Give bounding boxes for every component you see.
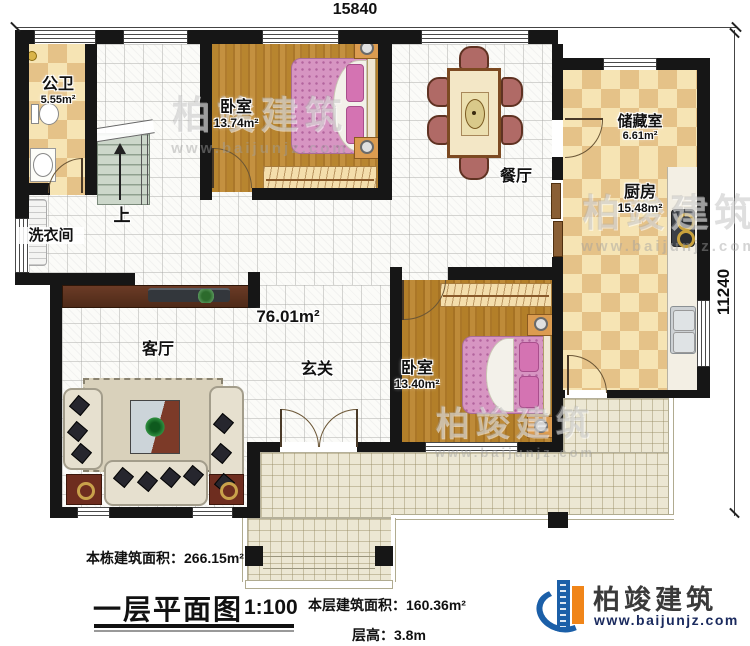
wall bbox=[247, 442, 280, 452]
room-label-living: 客厅 bbox=[132, 341, 184, 359]
window bbox=[123, 30, 188, 44]
terrace-column bbox=[548, 512, 568, 528]
tv-icon bbox=[148, 288, 230, 302]
porch-column bbox=[245, 546, 263, 566]
bedroom2-door-leaf bbox=[402, 280, 404, 320]
lamp-icon bbox=[534, 419, 548, 433]
bathroom-door-leaf bbox=[81, 158, 83, 193]
room-label-bedroom1: 卧室 13.74m² bbox=[196, 99, 276, 131]
room-label-bedroom2: 卧室 13.40m² bbox=[384, 360, 450, 392]
window bbox=[425, 442, 518, 452]
wall bbox=[248, 272, 260, 308]
window bbox=[603, 58, 657, 70]
room-name: 公卫 bbox=[26, 76, 90, 94]
chair-icon bbox=[427, 115, 449, 145]
porch-step-line bbox=[263, 568, 375, 569]
wall bbox=[552, 257, 563, 452]
room-label-laundry: 洗衣间 bbox=[18, 227, 84, 244]
wardrobe-icon bbox=[440, 283, 552, 307]
lamp-icon bbox=[220, 482, 238, 500]
room-area: 13.40m² bbox=[384, 378, 450, 392]
bed-headboard bbox=[543, 334, 551, 416]
wall bbox=[607, 390, 710, 398]
pillow-icon bbox=[519, 342, 539, 372]
wall bbox=[697, 367, 710, 398]
floor-plan: 15840 11240 柏竣建筑 www.baijunjz.com 柏竣建筑 w… bbox=[0, 0, 750, 646]
burner-icon bbox=[677, 213, 695, 231]
terrace-curb bbox=[391, 514, 674, 520]
pillow-icon bbox=[346, 64, 364, 102]
stairs-up-label: 上 bbox=[110, 206, 134, 226]
lamp-icon bbox=[77, 482, 95, 500]
window bbox=[421, 30, 529, 44]
chair-icon bbox=[501, 115, 523, 145]
sliding-door-panel bbox=[551, 183, 561, 219]
wardrobe-rail bbox=[443, 295, 549, 297]
plant-icon bbox=[144, 416, 166, 438]
plant-icon bbox=[198, 289, 214, 303]
wall bbox=[390, 267, 402, 442]
room-label-bathroom: 公卫 5.55m² bbox=[26, 76, 90, 107]
window bbox=[192, 507, 233, 518]
wardrobe-rail bbox=[266, 179, 374, 181]
open-area-label: 76.01m² bbox=[248, 307, 328, 327]
lamp-icon bbox=[534, 317, 548, 331]
porch-step-line bbox=[263, 556, 375, 557]
bedroom1-door-leaf bbox=[212, 148, 214, 188]
wall bbox=[247, 442, 260, 518]
window bbox=[697, 300, 710, 367]
terrace-floor bbox=[260, 452, 670, 518]
company-logo: 柏竣建筑 www.baijunjz.com bbox=[533, 574, 743, 636]
room-name: 厨房 bbox=[602, 184, 678, 202]
wall bbox=[552, 44, 563, 120]
stairs-handrail bbox=[141, 133, 148, 205]
total-area-text: 本栋建筑面积：266.15m² bbox=[86, 548, 244, 568]
wall bbox=[448, 267, 563, 280]
room-area: 15.48m² bbox=[602, 202, 678, 216]
wall bbox=[15, 30, 29, 218]
room-area: 6.61m² bbox=[602, 130, 678, 143]
room-area: 13.74m² bbox=[196, 117, 276, 131]
wall bbox=[15, 273, 135, 285]
lamp-icon bbox=[360, 140, 374, 154]
entry-door-leaf bbox=[356, 409, 358, 447]
sink-basin bbox=[673, 310, 695, 331]
room-label-storage: 储藏室 6.61m² bbox=[602, 113, 678, 143]
wall bbox=[378, 30, 392, 200]
logo-building-icon bbox=[557, 580, 570, 627]
wall bbox=[50, 285, 62, 518]
centerpiece-dot bbox=[472, 111, 476, 115]
storage-door-leaf bbox=[565, 118, 603, 120]
sliding-door-panel bbox=[553, 221, 563, 257]
window bbox=[34, 30, 96, 44]
scale-text: 1:100 bbox=[244, 596, 298, 620]
wall bbox=[697, 58, 710, 300]
floor-title: 一层平面图 bbox=[93, 588, 243, 628]
sink-icon bbox=[33, 153, 53, 177]
chair-icon bbox=[501, 77, 523, 107]
porch-step bbox=[245, 580, 393, 589]
room-name: 玄关 bbox=[294, 361, 340, 379]
room-name: 客厅 bbox=[132, 341, 184, 359]
stairs-arrowhead bbox=[114, 143, 126, 154]
room-name: 餐厅 bbox=[486, 168, 546, 186]
window bbox=[262, 30, 339, 44]
dimension-top-label: 15840 bbox=[315, 1, 395, 19]
floor-area-text: 本层建筑面积：160.36m² bbox=[308, 595, 466, 615]
wall bbox=[29, 183, 50, 195]
title-underline bbox=[94, 624, 294, 628]
porch-floor bbox=[247, 518, 393, 584]
entry-door-leaf bbox=[280, 409, 282, 447]
dimension-line-top bbox=[15, 27, 737, 28]
chair-icon bbox=[459, 46, 489, 70]
pillow-icon bbox=[519, 376, 539, 408]
kitchen-door-leaf bbox=[567, 355, 569, 395]
porch-column bbox=[375, 546, 393, 566]
wall bbox=[552, 157, 563, 180]
room-label-kitchen: 厨房 15.48m² bbox=[602, 184, 678, 216]
chair-icon bbox=[427, 77, 449, 107]
room-name: 洗衣间 bbox=[18, 227, 84, 244]
dimension-right-label: 11240 bbox=[714, 246, 734, 338]
floor-height-text: 层高：3.8m bbox=[352, 625, 426, 645]
terrace-curb bbox=[668, 398, 674, 520]
dimension-line-right bbox=[734, 30, 735, 516]
wall bbox=[85, 30, 97, 195]
sink-basin bbox=[673, 332, 695, 353]
room-label-entry: 玄关 bbox=[294, 361, 340, 379]
room-name: 储藏室 bbox=[602, 113, 678, 130]
room-name: 卧室 bbox=[384, 360, 450, 378]
room-label-dining: 餐厅 bbox=[486, 168, 546, 186]
title-underline bbox=[94, 630, 294, 632]
wall bbox=[552, 390, 565, 398]
stairs-arrow bbox=[119, 152, 121, 200]
room-area: 5.55m² bbox=[26, 94, 90, 107]
window bbox=[77, 507, 110, 518]
logo-website: www.baijunjz.com bbox=[594, 612, 739, 628]
wall bbox=[252, 188, 392, 200]
logo-building-icon bbox=[572, 586, 584, 624]
burner-icon bbox=[677, 230, 695, 248]
chair-icon bbox=[459, 156, 489, 180]
room-name: 卧室 bbox=[196, 99, 276, 117]
wall bbox=[357, 442, 402, 452]
